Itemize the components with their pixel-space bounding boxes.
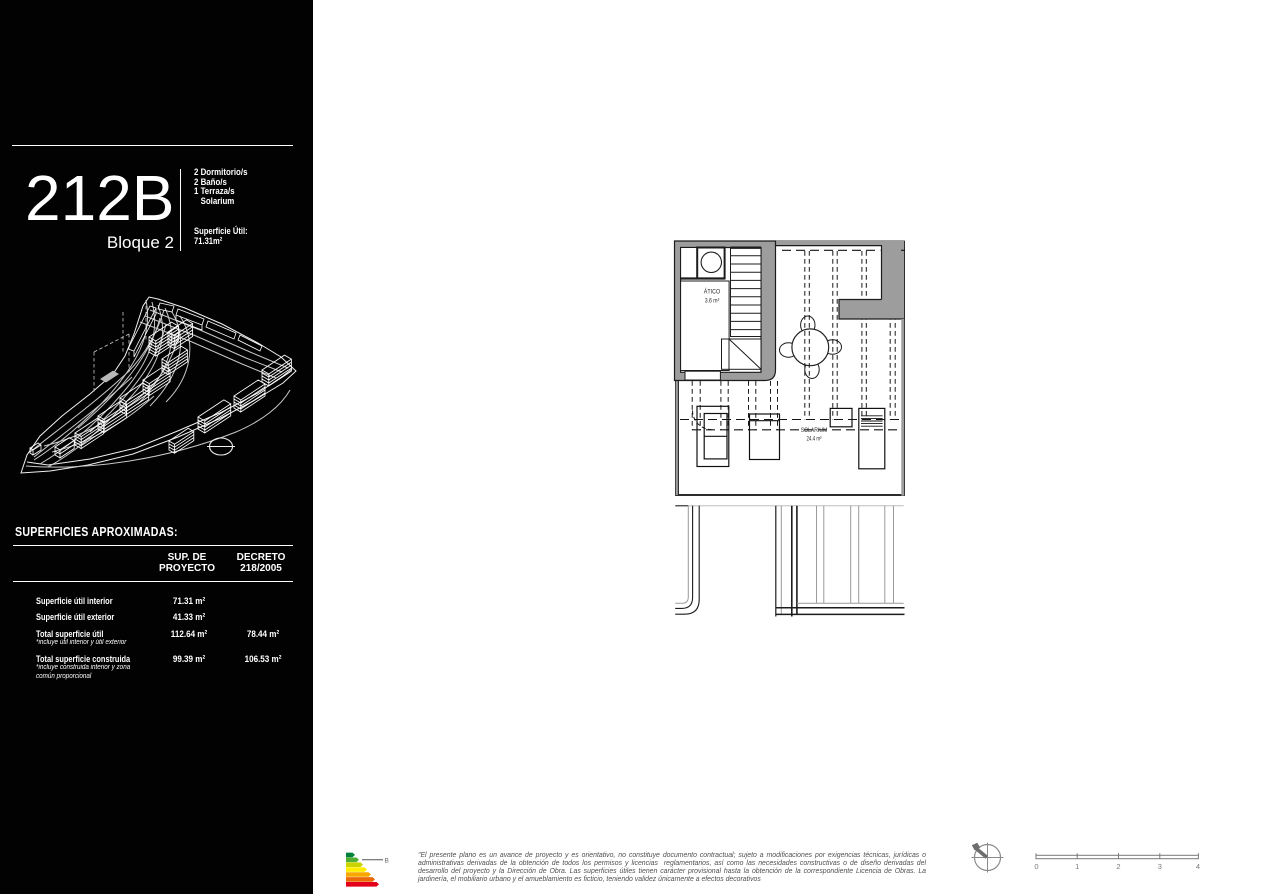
svg-text:4: 4 <box>1196 862 1200 871</box>
svg-text:SOLARIUM: SOLARIUM <box>801 427 828 434</box>
svg-text:3.6 m²: 3.6 m² <box>705 298 720 305</box>
svg-text:3: 3 <box>1158 862 1162 871</box>
svg-text:2: 2 <box>1116 862 1120 871</box>
svg-text:24.4 m²: 24.4 m² <box>806 436 821 443</box>
svg-text:1: 1 <box>1075 862 1079 871</box>
svg-text:B: B <box>385 857 389 864</box>
svg-text:0: 0 <box>1034 862 1038 871</box>
svg-text:ÁTICO: ÁTICO <box>704 289 721 296</box>
